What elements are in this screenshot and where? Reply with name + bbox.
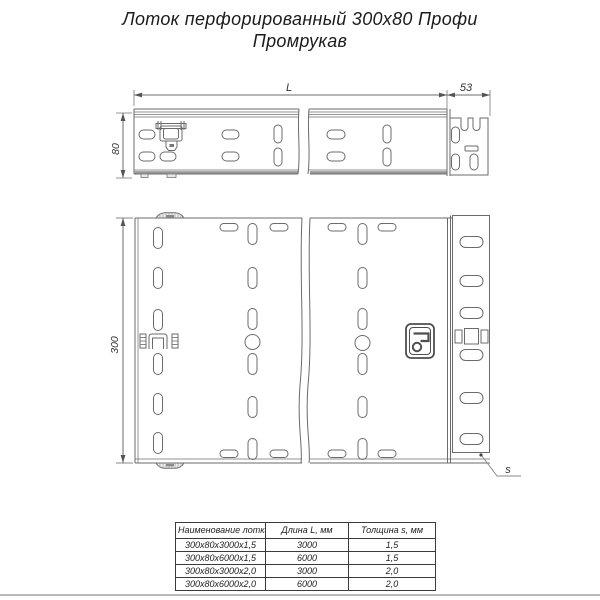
spec-table-header-row: Наименование лотка Длина L, мм Толщина s… — [176, 523, 436, 539]
dim-label-end: 53 — [460, 82, 473, 94]
latch-mechanism-icon — [156, 121, 186, 151]
side-view — [116, 90, 490, 178]
thickness-leader — [479, 453, 521, 476]
side-view-dim-labels: L 53 80 — [110, 82, 473, 155]
spec-table-row: 300х80х6000х1,5 6000 1,5 — [176, 552, 436, 565]
side-view-connector-end — [447, 109, 488, 176]
spec-table-cell: 300х80х3000х1,5 — [176, 539, 266, 552]
spec-table: Наименование лотка Длина L, мм Толщина s… — [175, 522, 436, 591]
dim-label-height: 80 — [110, 143, 122, 155]
plan-edge-ovals-left — [220, 224, 288, 458]
spec-table-cell: 6000 — [266, 578, 349, 591]
plan-perforations-column-b — [245, 224, 260, 460]
bracket-cutout-pattern — [140, 334, 178, 349]
plan-perforations-column-a — [154, 228, 163, 454]
spec-table-header-name: Наименование лотка — [176, 523, 266, 539]
promrukav-logo-icon — [406, 324, 434, 358]
spec-table-header-thickness: Толщина s, мм — [349, 523, 436, 539]
dimension-arrows — [121, 93, 490, 178]
spec-table-row: 300х80х6000х2,0 6000 2,0 — [176, 578, 436, 591]
spec-table-cell: 2,0 — [349, 565, 436, 578]
plan-view — [116, 213, 521, 476]
spec-table-cell: 3000 — [266, 565, 349, 578]
spec-table-cell: 1,5 — [349, 552, 436, 565]
side-view-right-segment — [308, 109, 447, 174]
spec-table-cell: 6000 — [266, 552, 349, 565]
spec-table-cell: 300х80х3000х2,0 — [176, 565, 266, 578]
spec-table-row: 300х80х3000х2,0 3000 2,0 — [176, 565, 436, 578]
technical-drawing-page: Лоток перфорированный 300х80 Профи Промр… — [0, 0, 600, 600]
plan-view-body — [135, 218, 490, 463]
dim-label-width: 300 — [109, 336, 121, 354]
latch-bump-bottom — [156, 463, 184, 468]
dim-label-length: L — [286, 82, 292, 94]
spec-table-cell: 2,0 — [349, 578, 436, 591]
spec-table-cell: 1,5 — [349, 539, 436, 552]
drawing-canvas: L 53 80 — [0, 0, 600, 600]
spec-table-cell: 300х80х6000х2,0 — [176, 578, 266, 591]
spec-table-cell: 3000 — [266, 539, 349, 552]
plan-connector-plate — [448, 216, 490, 464]
spec-table-cell: 300х80х6000х1,5 — [176, 552, 266, 565]
plan-perforations-column-c — [328, 224, 396, 460]
sheet-frame-line — [0, 594, 600, 596]
spec-table-row: 300х80х3000х1,5 3000 1,5 — [176, 539, 436, 552]
latch-bump-top — [156, 213, 184, 218]
spec-table-header-length: Длина L, мм — [266, 523, 349, 539]
dim-label-thickness: s — [505, 464, 511, 476]
side-view-left-segment — [134, 109, 299, 178]
